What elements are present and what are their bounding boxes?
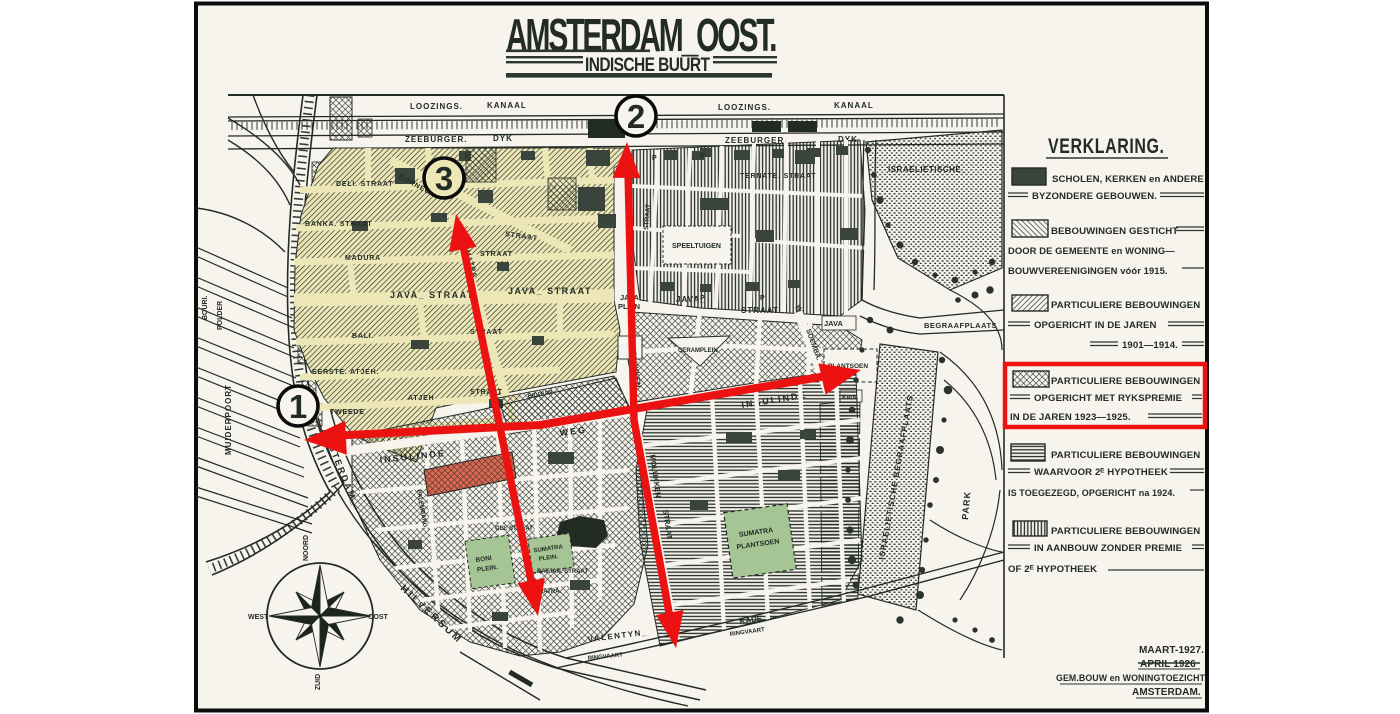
svg-text:APRIL 1926: APRIL 1926 [1140,659,1196,670]
svg-text:IN AANBOUW ZONDER PREMIE: IN AANBOUW ZONDER PREMIE [1034,543,1183,554]
svg-text:DYK: DYK [493,134,513,143]
svg-text:MUIDERPOORT: MUIDERPOORT [224,384,233,455]
svg-text:ZEEBURGER.: ZEEBURGER. [405,135,467,144]
svg-text:BYZONDERE GEBOUWEN.: BYZONDERE GEBOUWEN. [1032,191,1157,202]
svg-text:PARTICULIERE BEBOUWINGEN: PARTICULIERE BEBOUWINGEN [1051,376,1200,387]
svg-text:BALI.: BALI. [352,333,374,340]
svg-text:STRAAT: STRAAT [480,251,513,258]
svg-text:IN DE JAREN 1923—1925.: IN DE JAREN 1923—1925. [1010,412,1131,423]
svg-text:OPGERICHT IN DE JAREN: OPGERICHT IN DE JAREN [1034,320,1157,331]
svg-text:BOUWVEREENIGINGEN vóór 1915.: BOUWVEREENIGINGEN vóór 1915. [1008,265,1168,276]
svg-text:SPEELTUIGEN: SPEELTUIGEN [672,243,721,250]
svg-text:JAVA: JAVA [824,319,843,328]
svg-text:OBI. STRAAT: OBI. STRAAT [495,526,533,532]
svg-text:1901—1914.: 1901—1914. [1122,340,1178,351]
svg-text:LOOZINGS.: LOOZINGS. [410,102,463,111]
svg-text:SCHOLEN, KERKEN en ANDERE: SCHOLEN, KERKEN en ANDERE [1052,174,1204,185]
svg-text:EERSTE. ATJEH.: EERSTE. ATJEH. [312,369,379,376]
svg-text:VERKLARING.: VERKLARING. [1048,134,1164,158]
svg-text:INDISCHE BUURT: INDISCHE BUURT [585,53,710,75]
svg-text:1: 1 [289,388,307,425]
svg-text:WAARVOOR 2ᴱ HYPOTHEEK: WAARVOOR 2ᴱ HYPOTHEEK [1034,467,1168,478]
svg-text:WEST: WEST [248,614,269,621]
svg-text:DOOR DE GEMEENTE en WONING—: DOOR DE GEMEENTE en WONING— [1008,245,1175,256]
svg-text:AMSTERDAM.: AMSTERDAM. [1132,687,1201,698]
svg-text:P: P [652,155,657,162]
svg-text:KANAAL: KANAAL [487,101,527,110]
svg-text:ZUID: ZUID [315,674,322,690]
svg-text:PARTICULIERE BEBOUWINGEN: PARTICULIERE BEBOUWINGEN [1051,450,1200,461]
svg-text:3: 3 [435,160,453,197]
svg-text:STRAAT: STRAAT [470,329,503,336]
svg-text:PARTICULIERE BEBOUWINGEN: PARTICULIERE BEBOUWINGEN [1051,300,1200,311]
svg-text:TERNATE. STRAAT: TERNATE. STRAAT [740,173,816,180]
svg-text:CERAMPLEIN: CERAMPLEIN [678,348,718,354]
svg-text:LOOZINGS.: LOOZINGS. [718,103,771,112]
svg-text:OF 2ᴱ HYPOTHEEK: OF 2ᴱ HYPOTHEEK [1008,564,1097,575]
svg-text:JAVA_ STRAAT: JAVA_ STRAAT [390,290,474,300]
svg-text:BEGRAAFPLAATS: BEGRAAFPLAATS [924,321,997,330]
svg-text:KANAAL: KANAAL [834,101,874,110]
svg-text:STRAAT: STRAAT [741,306,779,315]
svg-text:P: P [700,153,705,160]
svg-text:TWEEDE: TWEEDE [330,409,365,416]
svg-text:BATJAN. STRAAT: BATJAN. STRAAT [537,569,588,575]
svg-text:DELI. STRAAT: DELI. STRAAT [336,181,393,188]
svg-text:OPGERICHT MET RYKSPREMIE: OPGERICHT MET RYKSPREMIE [1034,393,1183,404]
svg-text:P: P [700,295,705,302]
svg-text:P: P [760,295,765,302]
svg-text:BANKA. STRAAT: BANKA. STRAAT [305,221,372,228]
svg-text:MADURA: MADURA [345,255,381,262]
svg-text:POLDER: POLDER [217,301,224,330]
svg-text:OOST: OOST [368,614,389,621]
svg-text:2: 2 [627,98,645,135]
svg-text:IS TOEGEZEGD, OPGERICHT na 192: IS TOEGEZEGD, OPGERICHT na 1924. [1008,488,1175,498]
svg-text:ATJEH: ATJEH [408,395,434,402]
svg-text:MAART-1927.: MAART-1927. [1139,645,1204,656]
svg-text:ISRAELIETISCHE_: ISRAELIETISCHE_ [888,165,966,174]
svg-text:JAVA_ STRAAT: JAVA_ STRAAT [508,286,592,296]
svg-text:NOORD: NOORD [303,535,310,561]
svg-text:GEM.BOUW en WONINGTOEZICHT.: GEM.BOUW en WONINGTOEZICHT. [1056,673,1207,683]
svg-text:STRAAT: STRAAT [470,389,503,396]
svg-text:PARTICULIERE BEBOUWINGEN: PARTICULIERE BEBOUWINGEN [1051,526,1200,537]
svg-text:BOURI.: BOURI. [202,295,209,320]
svg-text:BEBOUWINGEN GESTICHT: BEBOUWINGEN GESTICHT [1051,226,1178,237]
